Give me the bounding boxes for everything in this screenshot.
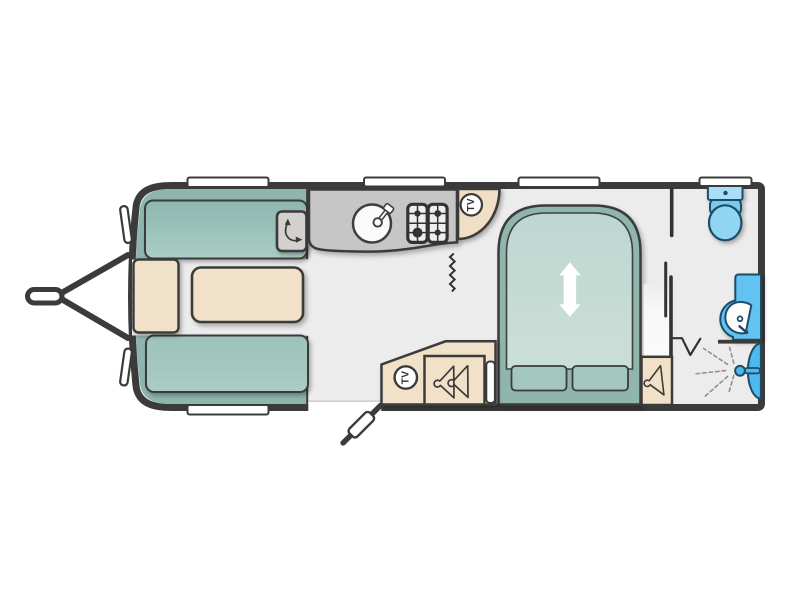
svg-text:TV: TV <box>400 371 411 384</box>
svg-text:TV: TV <box>466 198 477 211</box>
